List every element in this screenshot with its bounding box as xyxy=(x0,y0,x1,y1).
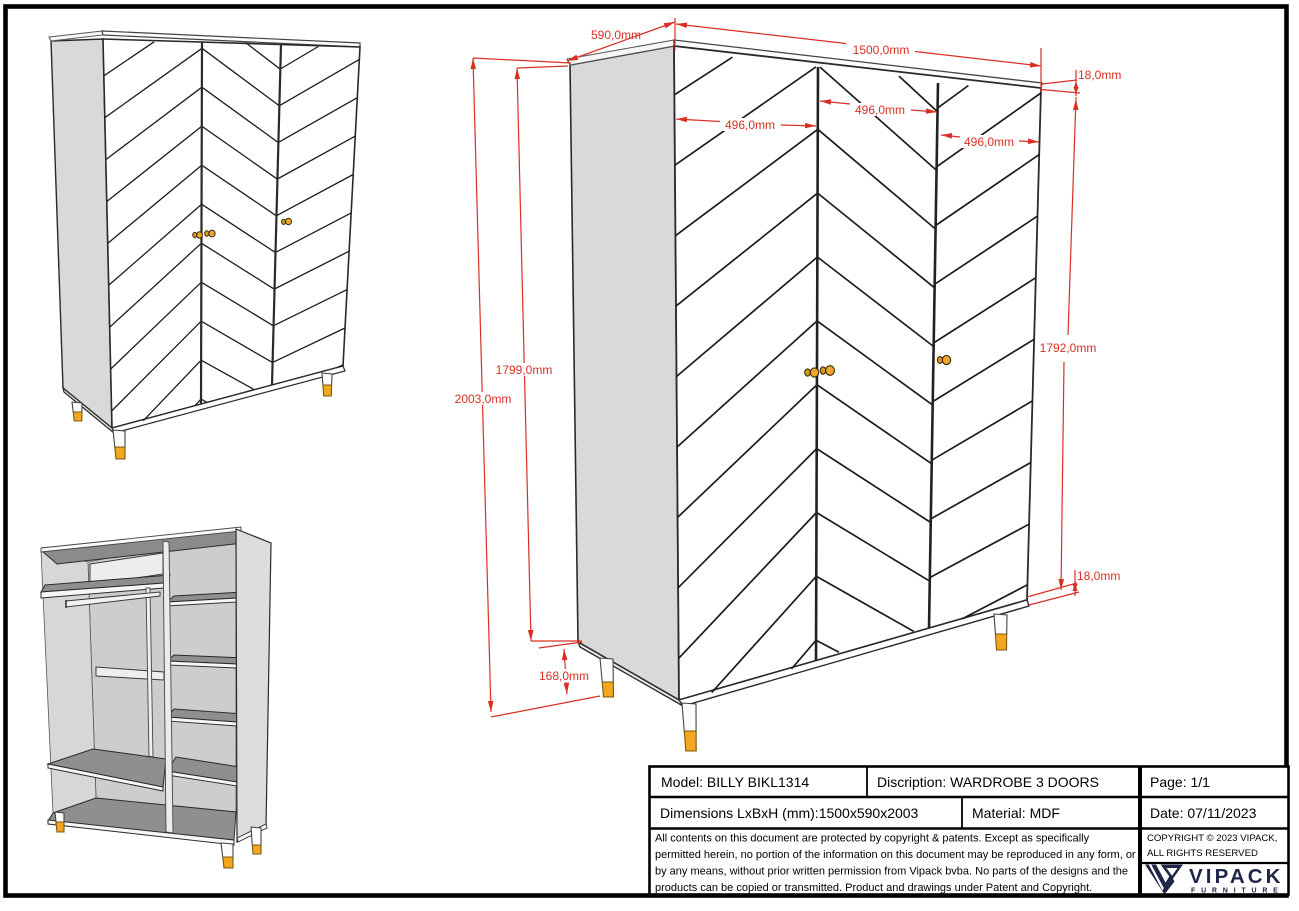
svg-text:All contents on this document: All contents on this document are protec… xyxy=(655,833,1090,845)
svg-text:496,0mm: 496,0mm xyxy=(725,118,775,132)
svg-text:Date: 07/11/2023: Date: 07/11/2023 xyxy=(1150,805,1257,821)
svg-text:VIPACK: VIPACK xyxy=(1189,865,1284,888)
svg-text:2003,0mm: 2003,0mm xyxy=(455,392,512,406)
svg-text:Dimensions LxBxH (mm):1500x590: Dimensions LxBxH (mm):1500x590x2003 xyxy=(660,805,919,821)
svg-text:Material: MDF: Material: MDF xyxy=(972,805,1060,821)
svg-text:Model: BILLY BIKL1314: Model: BILLY BIKL1314 xyxy=(661,774,809,790)
svg-text:1792,0mm: 1792,0mm xyxy=(1040,341,1097,355)
svg-text:ALL RIGHTS RESERVED: ALL RIGHTS RESERVED xyxy=(1147,848,1258,859)
svg-text:permitted herein, no portion o: permitted herein, no portion of the info… xyxy=(655,849,1136,861)
svg-text:COPYRIGHT © 2023 VIPACK,: COPYRIGHT © 2023 VIPACK, xyxy=(1147,833,1277,844)
svg-text:496,0mm: 496,0mm xyxy=(855,103,905,117)
svg-text:by any means, without prior wr: by any means, without prior written perm… xyxy=(655,866,1128,878)
svg-text:18,0mm: 18,0mm xyxy=(1077,569,1120,583)
svg-text:590,0mm: 590,0mm xyxy=(591,28,641,42)
svg-text:18,0mm: 18,0mm xyxy=(1078,68,1121,82)
svg-text:Page: 1/1: Page: 1/1 xyxy=(1150,774,1210,790)
svg-text:products can be copied or tran: products can be copied or transmitted. P… xyxy=(655,882,1092,894)
svg-text:1500,0mm: 1500,0mm xyxy=(853,43,910,57)
svg-text:168,0mm: 168,0mm xyxy=(539,669,589,683)
svg-text:Discription: WARDROBE 3 DOORS: Discription: WARDROBE 3 DOORS xyxy=(877,774,1099,790)
svg-text:FURNITURE: FURNITURE xyxy=(1191,888,1284,895)
svg-text:496,0mm: 496,0mm xyxy=(964,135,1014,149)
svg-text:1799,0mm: 1799,0mm xyxy=(496,363,553,377)
